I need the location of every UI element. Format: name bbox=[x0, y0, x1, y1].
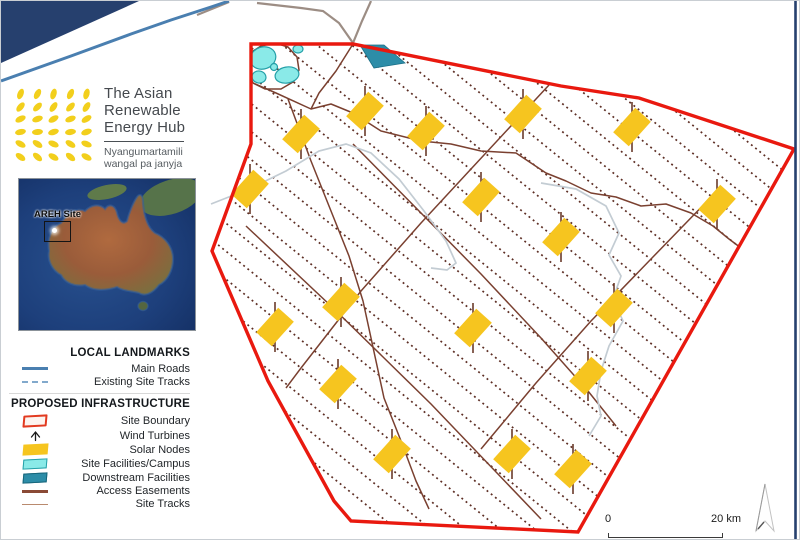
solar-node bbox=[493, 435, 531, 474]
access-easement-track bbox=[246, 226, 541, 519]
logo-seed bbox=[64, 151, 76, 163]
legend-label: Downstream Facilities bbox=[61, 472, 190, 484]
logo-divider bbox=[104, 141, 184, 142]
downstream-facilities-symbol bbox=[22, 472, 47, 483]
wind-turbine-row bbox=[151, 247, 800, 540]
inset-site-dot bbox=[52, 228, 57, 233]
wind-turbine-row bbox=[151, 191, 800, 540]
logo-seed bbox=[64, 114, 76, 124]
australia-inset-map: AREH Site bbox=[18, 178, 196, 331]
wind-turbine-row bbox=[151, 1, 800, 501]
legend-label: Access Easements bbox=[61, 485, 190, 497]
scale-bar bbox=[608, 533, 723, 538]
legend-label: Site Tracks bbox=[61, 498, 190, 510]
solar-node bbox=[373, 435, 411, 474]
legend-label: Existing Site Tracks bbox=[61, 376, 190, 388]
wind-turbine-row bbox=[151, 23, 800, 540]
solar-node bbox=[542, 218, 580, 257]
logo-seed bbox=[81, 100, 92, 112]
inset-site-box bbox=[44, 221, 71, 242]
logo-seed bbox=[14, 151, 26, 162]
legend-label: Solar Nodes bbox=[61, 444, 190, 456]
solar-nodes bbox=[231, 86, 736, 494]
solar-node bbox=[698, 185, 736, 224]
legend-label: Main Roads bbox=[61, 363, 190, 375]
legend-heading-local: LOCAL LANDMARKS bbox=[9, 347, 190, 359]
legend-row-existing-tracks: Existing Site Tracks bbox=[9, 375, 190, 388]
scale-start-label: 0 bbox=[605, 513, 611, 525]
legend-row-site-boundary: Site Boundary bbox=[9, 413, 190, 429]
areh-map-page: The Asian Renewable Energy Hub Nyangumar… bbox=[0, 0, 800, 540]
legend-row-downstream: Downstream Facilities bbox=[9, 471, 190, 485]
logo-seed bbox=[31, 139, 43, 150]
logo-text: The Asian Renewable Energy Hub Nyangumar… bbox=[104, 85, 224, 170]
legend-divider bbox=[9, 393, 190, 394]
access-easements bbox=[246, 43, 741, 519]
logo-title-line: The Asian bbox=[104, 85, 224, 102]
solar-node bbox=[554, 450, 592, 489]
solar-node bbox=[462, 178, 500, 217]
wind-turbine-row bbox=[151, 1, 800, 540]
site-track-symbol bbox=[22, 504, 48, 505]
wind-turbine-rows bbox=[151, 1, 800, 540]
solar-node bbox=[346, 92, 384, 131]
legend-row-main-roads: Main Roads bbox=[9, 362, 190, 375]
wind-turbine-row bbox=[151, 1, 800, 165]
solar-node bbox=[595, 289, 633, 328]
north-arrow-icon bbox=[751, 482, 779, 540]
legend-row-access-easements: Access Easements bbox=[9, 485, 190, 498]
solar-node bbox=[613, 108, 651, 147]
logo-subtitle-line: Nyangumartamili bbox=[104, 146, 224, 158]
logo-seed bbox=[80, 140, 92, 150]
map-corner-shape bbox=[1, 1, 139, 63]
wind-turbine-icon bbox=[29, 430, 42, 442]
site-facility-campus bbox=[251, 70, 267, 84]
logo-seed bbox=[31, 151, 43, 163]
australia-satellite-graphic bbox=[19, 179, 195, 330]
solar-node bbox=[231, 170, 269, 209]
access-easement-symbol bbox=[22, 490, 48, 493]
logo-seed bbox=[47, 127, 59, 136]
wind-turbine-row bbox=[151, 219, 800, 540]
scale-end-label: 20 km bbox=[696, 513, 741, 525]
logo-seed bbox=[64, 101, 76, 113]
wind-turbine-row bbox=[151, 51, 800, 540]
logo-title-line: Energy Hub bbox=[104, 119, 224, 136]
logo-seed bbox=[48, 100, 59, 112]
local-road bbox=[353, 1, 371, 43]
solar-node bbox=[319, 365, 357, 404]
legend-label: Site Boundary bbox=[61, 415, 190, 427]
legend-label: Site Facilities/Campus bbox=[61, 458, 190, 470]
logo-seed bbox=[14, 128, 26, 136]
legend-label: Wind Turbines bbox=[61, 430, 190, 442]
solar-node bbox=[454, 309, 492, 348]
legend-row-wind-turbines: Wind Turbines bbox=[9, 429, 190, 442]
logo-seed bbox=[47, 139, 59, 149]
logo-seed bbox=[31, 101, 43, 113]
wind-turbine-row bbox=[151, 1, 800, 333]
logo-seed bbox=[31, 128, 43, 135]
logo-seed bbox=[80, 114, 93, 125]
legend-heading-proposed: PROPOSED INFRASTRUCTURE bbox=[9, 398, 190, 410]
solar-node bbox=[256, 308, 294, 347]
wind-turbine-row bbox=[151, 1, 800, 277]
logo-seed bbox=[31, 115, 43, 124]
solar-node bbox=[569, 357, 607, 396]
main-road-symbol bbox=[22, 367, 48, 370]
logo-seed bbox=[80, 152, 93, 162]
legend-row-site-facilities: Site Facilities/Campus bbox=[9, 457, 190, 471]
logo-title-line: Renewable bbox=[104, 102, 224, 119]
legend: LOCAL LANDMARKS Main Roads Existing Site… bbox=[9, 345, 190, 511]
access-easement-track bbox=[311, 44, 353, 109]
legend-row-site-tracks: Site Tracks bbox=[9, 498, 190, 511]
local-road bbox=[257, 3, 353, 43]
site-boundary-symbol bbox=[22, 415, 47, 428]
solar-node-symbol bbox=[22, 443, 48, 455]
wind-turbine-row bbox=[151, 1, 800, 473]
logo-seed bbox=[80, 127, 92, 136]
site-facility-campus bbox=[293, 45, 303, 53]
logo-subtitle-line: wangal pa janyja bbox=[104, 158, 224, 170]
site-facilities-symbol bbox=[22, 458, 47, 469]
solar-node bbox=[322, 283, 360, 322]
logo-seed bbox=[47, 152, 60, 163]
logo-seed bbox=[64, 128, 76, 135]
logo-seed bbox=[15, 100, 27, 112]
inset-site-label: AREH Site bbox=[34, 209, 81, 220]
logo-seed bbox=[14, 114, 27, 124]
solar-node bbox=[282, 115, 320, 154]
logo-seed bbox=[64, 139, 77, 150]
existing-track-symbol bbox=[22, 381, 48, 383]
logo-seed bbox=[47, 114, 60, 125]
solar-node bbox=[407, 112, 445, 151]
site-facility-campus bbox=[271, 64, 278, 71]
legend-row-solar-nodes: Solar Nodes bbox=[9, 443, 190, 457]
logo-seed-grid bbox=[15, 91, 99, 169]
logo-seed bbox=[14, 139, 27, 149]
